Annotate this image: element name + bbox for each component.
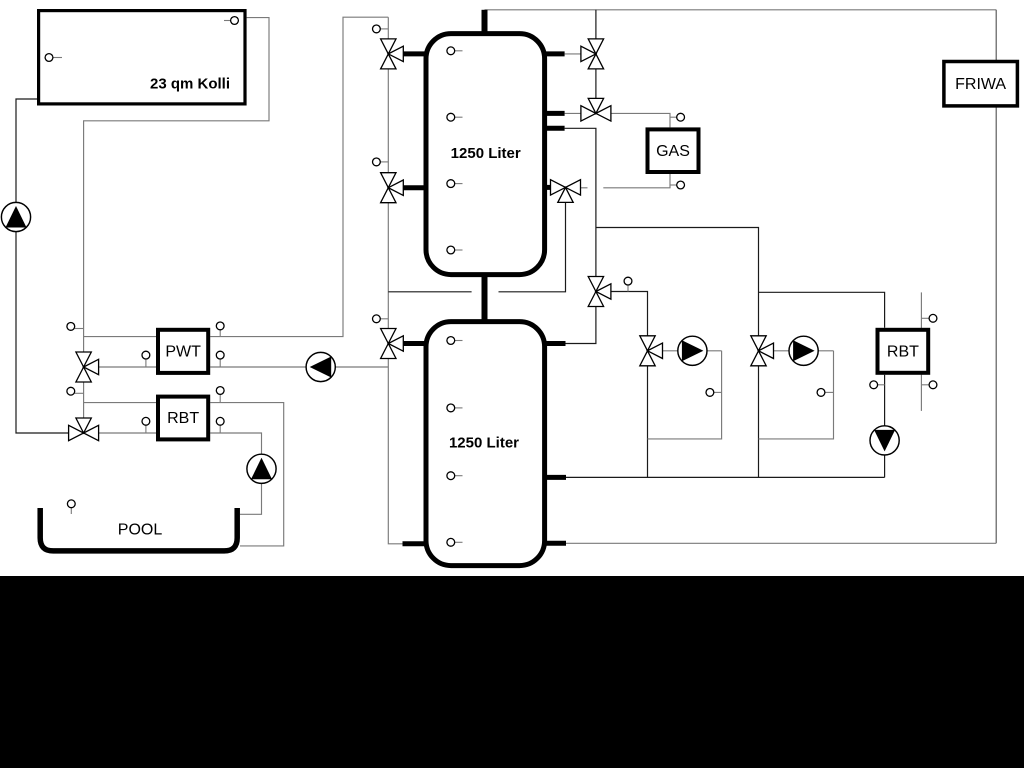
svg-text:1250 Liter: 1250 Liter (451, 145, 521, 162)
svg-text:PWT: PWT (165, 344, 201, 361)
svg-text:23 qm Kolli: 23 qm Kolli (150, 76, 230, 93)
svg-text:1250 Liter: 1250 Liter (449, 435, 519, 452)
svg-text:RBT: RBT (167, 410, 199, 427)
svg-text:FRIWA: FRIWA (955, 76, 1006, 93)
svg-text:POOL: POOL (118, 522, 163, 539)
svg-text:GAS: GAS (656, 143, 690, 160)
svg-text:RBT: RBT (887, 344, 919, 361)
